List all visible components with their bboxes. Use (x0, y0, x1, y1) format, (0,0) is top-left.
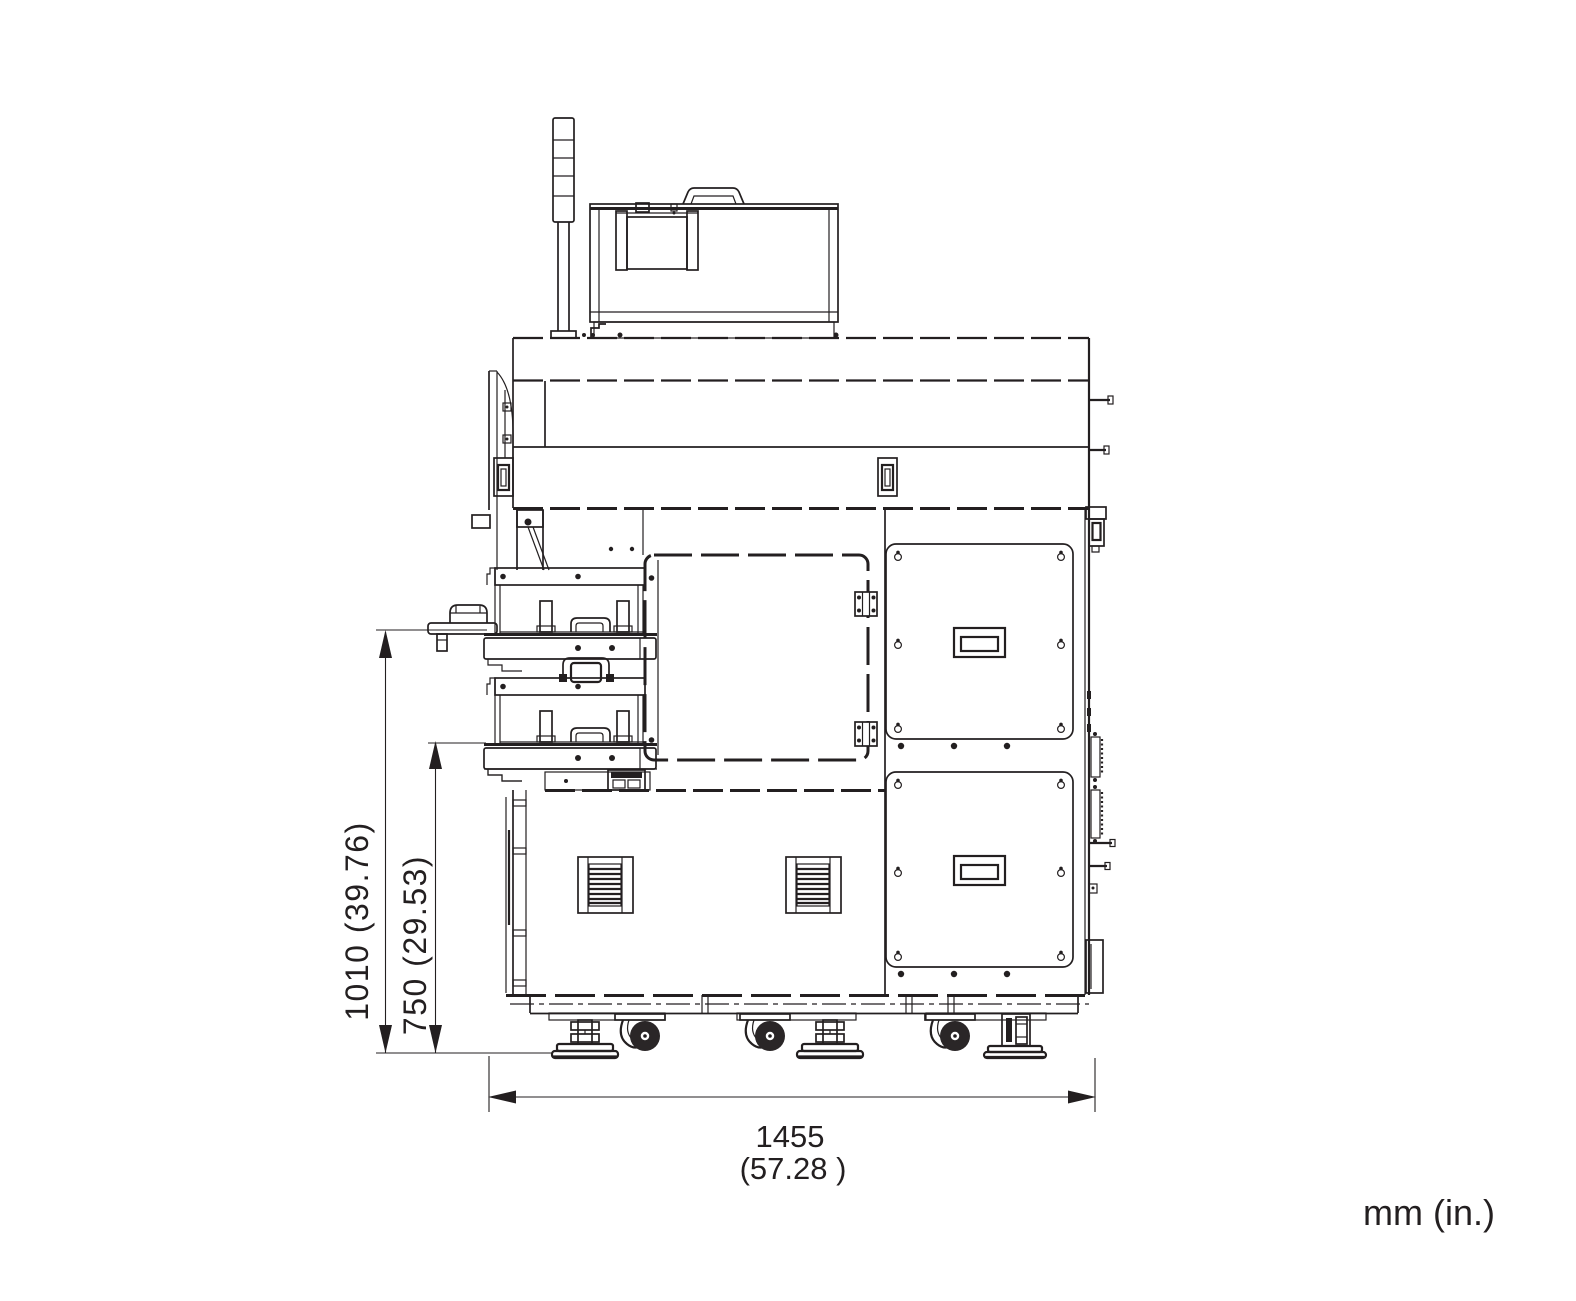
tray-platform (484, 769, 657, 790)
caster-mid (740, 1014, 790, 1051)
dimension-height-partial: 750 (29.53) (397, 741, 442, 1053)
leveling-foot-left (552, 1020, 618, 1058)
control-box-screen (616, 203, 698, 270)
left-flap (472, 371, 513, 570)
dim-label-1010: 1010 (39.76) (339, 821, 375, 1020)
door-hinge-bottom (855, 722, 877, 746)
vent-left (578, 857, 633, 913)
leveling-foot-mid (797, 1020, 863, 1058)
tray-bay-frame (517, 510, 643, 570)
tray-upper (484, 568, 657, 671)
right-panel-upper (886, 544, 1073, 749)
right-panel-lower (886, 772, 1073, 977)
units-note: mm (in.) (1363, 1192, 1495, 1233)
technical-drawing-page: 1010 (39.76) 750 (29.53) 1455 (57.28 ) m… (0, 0, 1576, 1301)
caster-left (615, 1014, 665, 1051)
top-section (513, 338, 1113, 995)
lower-body (506, 790, 1089, 996)
dim-label-1455-mm: 1455 (756, 1119, 825, 1154)
signal-tower (551, 118, 576, 338)
door-hinge-top (855, 592, 877, 616)
tray-lower (484, 678, 657, 781)
vent-right (786, 857, 841, 913)
dim-label-750: 750 (29.53) (397, 855, 433, 1035)
mid-latch (878, 458, 897, 496)
center-door (645, 555, 877, 760)
base (510, 995, 1089, 1058)
dim-label-1455-in: (57.28 ) (740, 1151, 847, 1186)
control-box (582, 188, 839, 338)
right-cabinet (885, 508, 1085, 995)
right-edge-details (1086, 507, 1115, 993)
machine-front-elevation: 1010 (39.76) 750 (29.53) 1455 (57.28 ) m… (0, 0, 1576, 1301)
machine-outline (428, 118, 1115, 1058)
dimension-width: 1455 (57.28 ) (488, 1091, 1096, 1187)
left-arm (428, 605, 497, 651)
caster-right (925, 1014, 975, 1051)
dimension-height-total: 1010 (39.76) (339, 630, 392, 1053)
